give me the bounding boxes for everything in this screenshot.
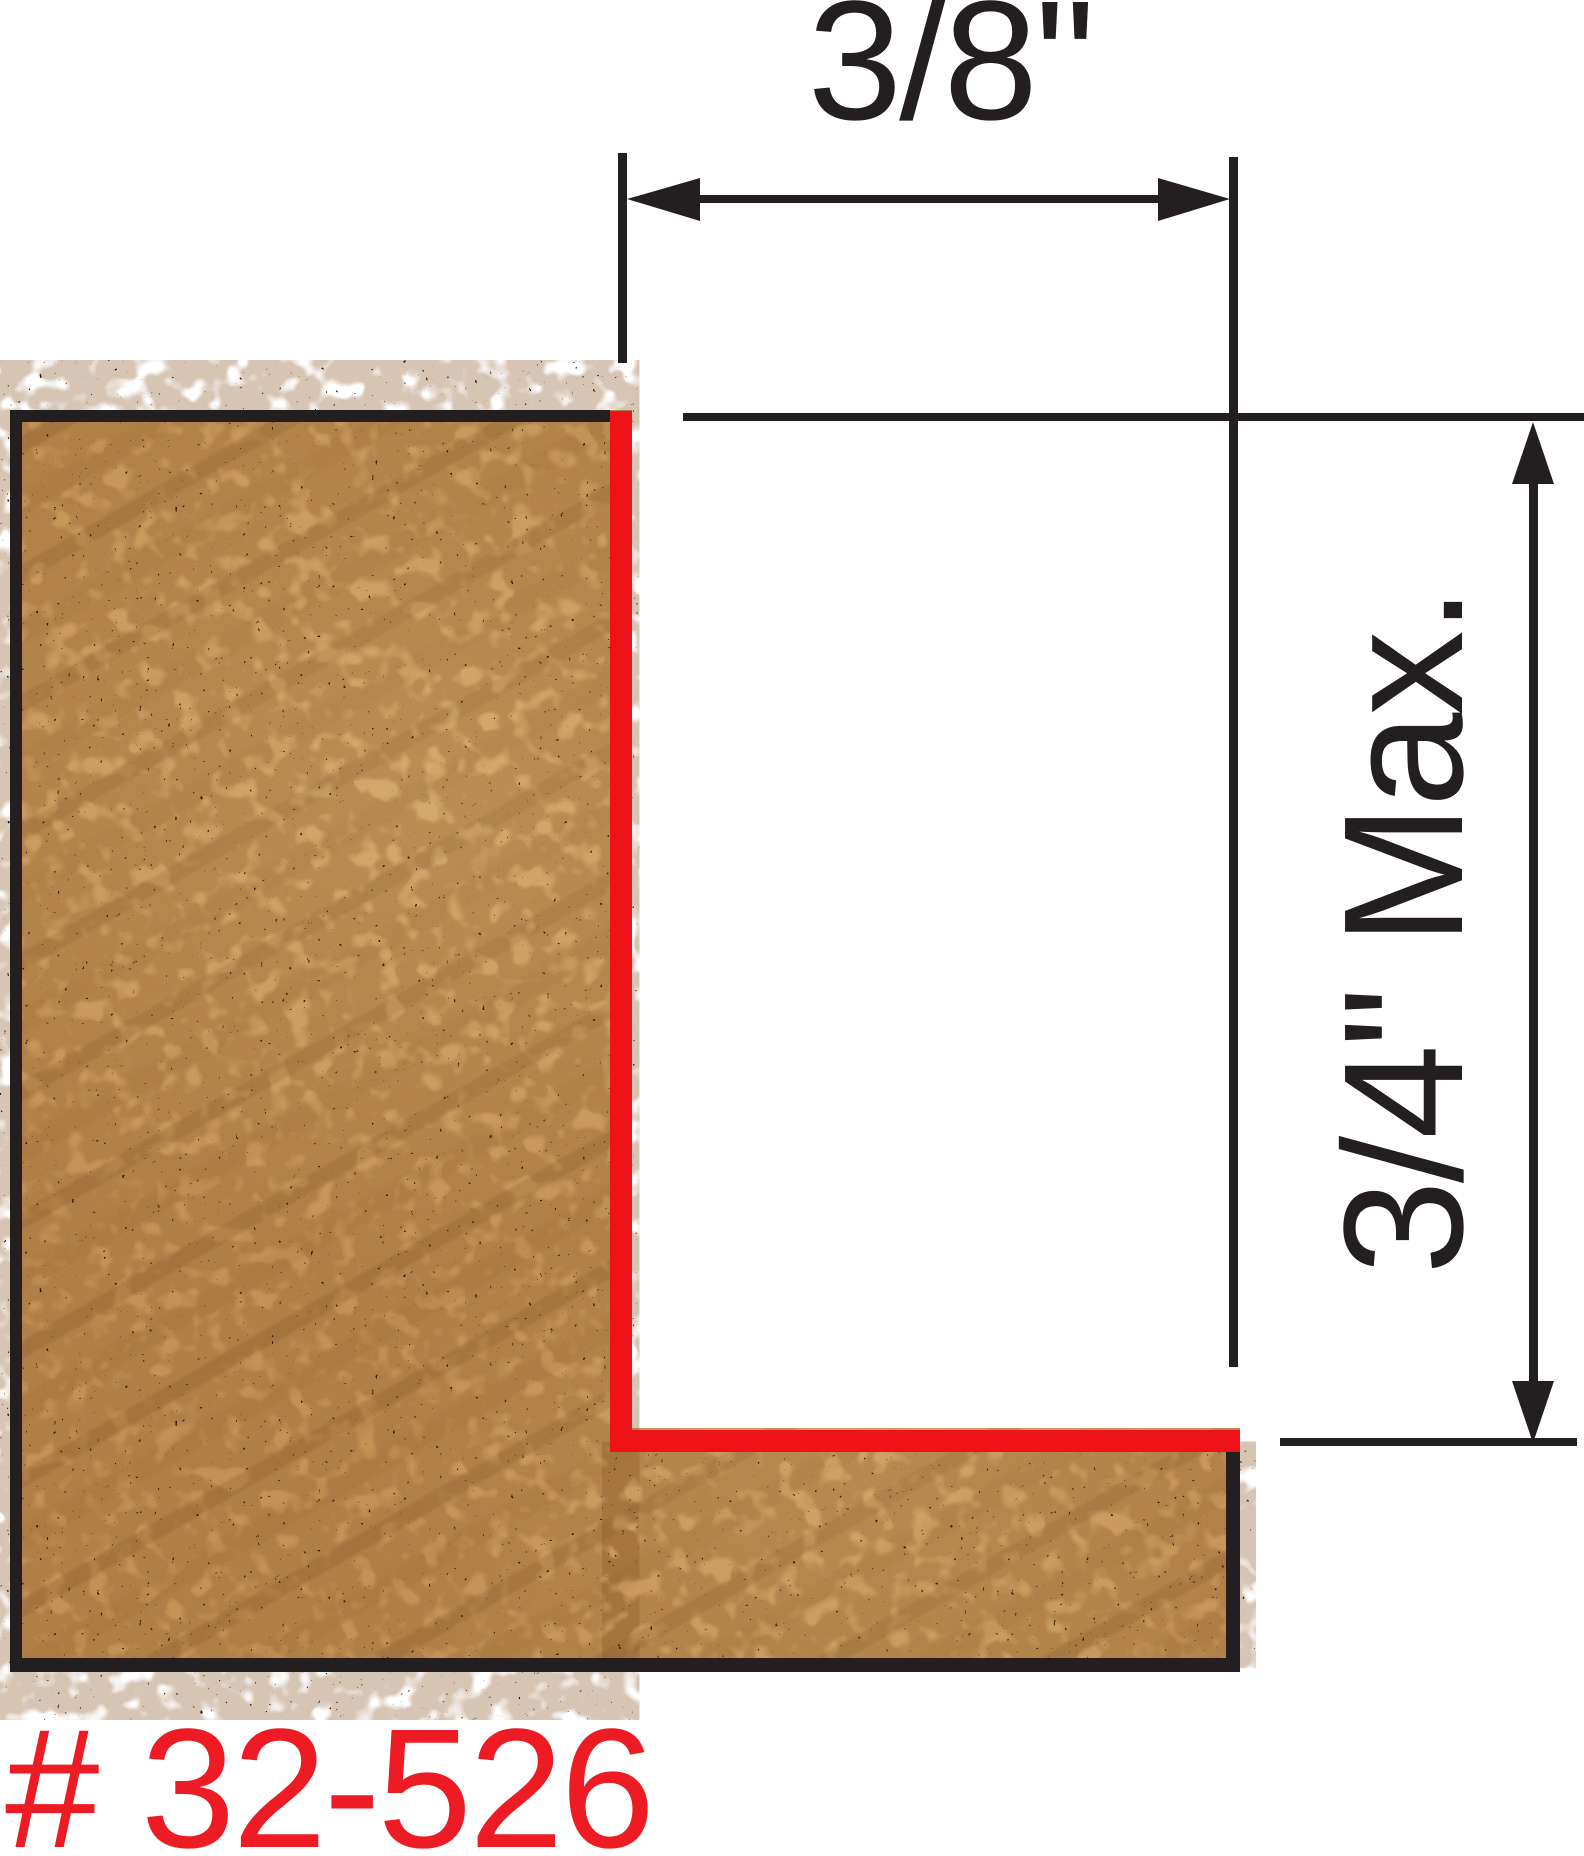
depth-bottom-extension-line [1280, 1438, 1577, 1446]
wood-border-right [1226, 1452, 1240, 1672]
width-extension-line-left [618, 153, 627, 363]
wood-border-top [10, 410, 610, 422]
rabbet-cut-horizontal-face [610, 1430, 1240, 1452]
rabbet-cut-vertical-face [610, 411, 632, 1452]
part-number-label: # 32-526 [5, 1704, 652, 1856]
width-extension-line-right [1229, 157, 1238, 1367]
wood-border-bottom [10, 1658, 1240, 1672]
wood-border-left [10, 410, 22, 1672]
top-surface-extension-line [683, 413, 1584, 421]
width-dimension-label: 3/8" [760, 0, 1140, 146]
depth-dimension-line [1529, 455, 1538, 1400]
diagram-canvas: 3/8" 3/4" Max. # 32-526 [0, 0, 1584, 1856]
width-dimension-line [660, 195, 1200, 203]
depth-dimension-label: 3/4" Max. [1319, 572, 1489, 1292]
